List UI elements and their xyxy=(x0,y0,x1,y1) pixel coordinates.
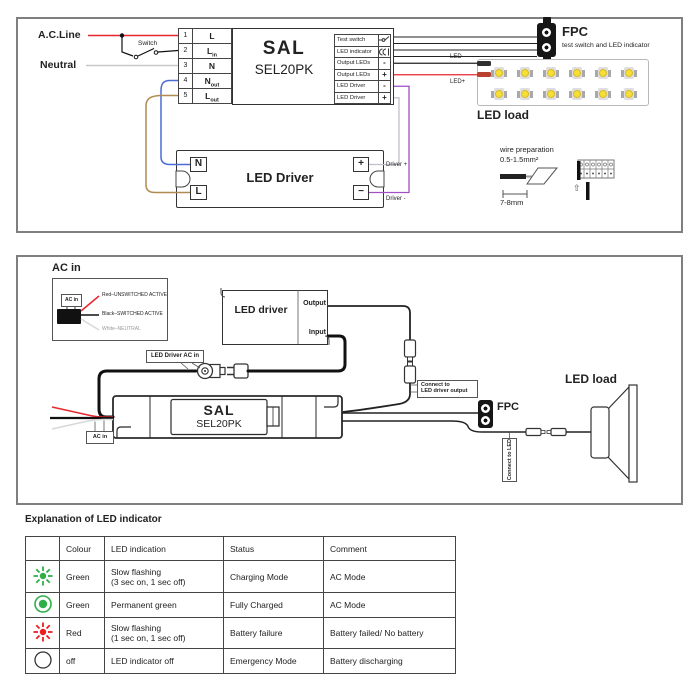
connect-led-label: Connect to LED xyxy=(502,438,517,482)
terminal-number: 3 xyxy=(179,59,193,73)
table-row: Green Permanent green Fully Charged AC M… xyxy=(26,593,456,618)
header-comment: Comment xyxy=(324,537,456,561)
cell-comment: AC Mode xyxy=(324,593,456,618)
fpc-hole-icon xyxy=(481,404,490,413)
driver-plus-terminal: + xyxy=(353,157,369,172)
led-chip-icon xyxy=(569,88,585,100)
table-row: Green Slow flashing (3 sec on, 1 sec off… xyxy=(26,561,456,593)
lead-black-label: Black–SWITCHED ACTIVE xyxy=(102,312,163,318)
table-row: Red Slow flashing (1 sec on, 1 sec off) … xyxy=(26,618,456,649)
terminal-row: 5Lout xyxy=(179,89,231,104)
fpc-subtitle: test switch and LED indicator xyxy=(562,42,650,50)
instruction-sheet: 1L 2Lin 3N 4Nout 5Lout SAL SEL20PK Test … xyxy=(0,0,700,700)
cell-indication: Slow flashing (3 sec on, 1 sec off) xyxy=(105,561,224,593)
cell-status: Battery failure xyxy=(224,618,324,649)
header-led-indication: LED indication xyxy=(105,537,224,561)
wire-prep-line2: 0.5-1.5mm² xyxy=(500,156,538,165)
cell-comment: Battery discharging xyxy=(324,649,456,674)
fpc-label-2: FPC xyxy=(497,401,519,414)
led-off-icon xyxy=(26,649,60,674)
driver-l-terminal: L xyxy=(190,185,207,200)
led-driver-title: LED Driver xyxy=(230,171,330,186)
connect-driver-label: Connect to LED driver output xyxy=(417,380,478,398)
led-chip-icon xyxy=(517,67,533,79)
cell-status: Fully Charged xyxy=(224,593,324,618)
led-load-label: LED load xyxy=(477,109,529,123)
cell-indication: LED indicator off xyxy=(105,649,224,674)
fpc-connector-icon xyxy=(537,23,556,57)
ac-line-label: A.C.Line xyxy=(38,29,81,41)
terminal-number: 4 xyxy=(179,74,193,88)
terminal-label-sub: out xyxy=(211,83,220,89)
led-chip-icon xyxy=(543,88,559,100)
table-header-row: Colour LED indication Status Comment xyxy=(26,537,456,561)
cell-colour: Green xyxy=(60,593,105,618)
led-chip-icon xyxy=(621,88,637,100)
driver-output-label: Output xyxy=(296,300,326,308)
terminal-row: 4Nout xyxy=(179,74,231,89)
terminal-label: L xyxy=(209,31,214,41)
lead-white-label: White–NEUTRAL xyxy=(102,327,141,333)
led-strip-board xyxy=(477,59,649,106)
led-chip-icon xyxy=(621,67,637,79)
cell-colour: Green xyxy=(60,561,105,593)
fpc-hole-icon xyxy=(481,416,490,425)
model-number: SEL20PK xyxy=(238,62,330,78)
driver-pos-label: Driver + xyxy=(386,162,407,169)
brand-logo: SAL xyxy=(238,38,330,60)
connect-driver-line2: LED driver output xyxy=(421,388,477,394)
led-chip-icon xyxy=(517,88,533,100)
header-status: Status xyxy=(224,537,324,561)
cell-status: Charging Mode xyxy=(224,561,324,593)
insert-arrow-icon: ⇧ xyxy=(573,183,581,193)
port-row-driver-plus: LED Driver + xyxy=(334,92,391,105)
wire-prep-line1: wire preparation xyxy=(500,146,554,155)
header-colour: Colour xyxy=(60,537,105,561)
driver-n-terminal: N xyxy=(190,157,207,172)
unit-brand: SAL xyxy=(171,402,267,418)
green-solid-led-icon xyxy=(26,593,60,618)
strip-length-label: 7-8mm xyxy=(500,199,523,208)
terminal-row: 2Lin xyxy=(179,44,231,59)
port-label: LED Driver xyxy=(334,92,379,105)
cell-comment: AC Mode xyxy=(324,561,456,593)
port-stack: Test switch LED indicator Output LEDs - … xyxy=(334,34,391,104)
unit-ac-in-label: AC in xyxy=(86,431,114,444)
led-indicator-table: Colour LED indication Status Comment Gre… xyxy=(25,536,456,674)
led-neg-label: LED- xyxy=(450,54,464,61)
terminal-number: 2 xyxy=(179,44,193,58)
terminal-row: 3N xyxy=(179,59,231,74)
terminal-row: 1L xyxy=(179,29,231,44)
driver-minus-terminal: − xyxy=(353,185,369,200)
fpc-title: FPC xyxy=(562,25,588,40)
table-row: off LED indicator off Emergency Mode Bat… xyxy=(26,649,456,674)
cell-indication: Permanent green xyxy=(105,593,224,618)
red-flashing-led-icon xyxy=(26,618,60,649)
led-chip-icon xyxy=(595,88,611,100)
header-icon-col xyxy=(26,537,60,561)
led-pos-label: LED+ xyxy=(450,79,465,86)
led-chip-icon xyxy=(595,67,611,79)
neutral-label: Neutral xyxy=(40,59,76,71)
fpc-connector-icon xyxy=(478,400,493,428)
fpc-hole-icon xyxy=(542,28,551,37)
switch-label: Switch xyxy=(138,40,157,47)
cell-colour: Red xyxy=(60,618,105,649)
terminal-number: 5 xyxy=(179,89,193,104)
cell-status: Emergency Mode xyxy=(224,649,324,674)
terminal-label-sub: out xyxy=(210,98,219,104)
ac-in-connector-body-icon xyxy=(57,309,81,324)
led-chip-icon xyxy=(491,88,507,100)
led-chip-icon xyxy=(569,67,585,79)
cell-indication: Slow flashing (1 sec on, 1 sec off) xyxy=(105,618,224,649)
table-title: Explanation of LED indicator xyxy=(25,514,162,526)
led-chip-icon xyxy=(543,67,559,79)
terminal-label: N xyxy=(209,61,215,71)
led-driver-title-2: LED driver xyxy=(224,304,298,316)
led-pos-pad-icon xyxy=(477,72,491,77)
led-load-label-2: LED load xyxy=(565,373,617,387)
driver-input-label: Input xyxy=(298,329,326,337)
terminal-label-sub: in xyxy=(212,53,217,59)
driver-ac-in-label: LED Driver AC in xyxy=(146,350,204,363)
green-flashing-led-icon xyxy=(26,561,60,593)
cell-comment: Battery failed/ No battery xyxy=(324,618,456,649)
driver-neg-label: Driver - xyxy=(386,196,406,203)
led-neg-pad-icon xyxy=(477,61,491,66)
port-pin-plus: + xyxy=(378,92,391,105)
led-chip-icon xyxy=(491,67,507,79)
unit-model: SEL20PK xyxy=(171,418,267,430)
ac-in-title: AC in xyxy=(52,262,81,275)
input-terminal-block: 1L 2Lin 3N 4Nout 5Lout xyxy=(178,28,232,104)
ac-in-plug-icon: AC in xyxy=(61,294,82,307)
lead-red-label: Red–UNSWITCHED ACTIVE xyxy=(102,293,167,299)
fpc-hole-icon xyxy=(542,43,551,52)
terminal-number: 1 xyxy=(179,29,193,43)
cell-colour: off xyxy=(60,649,105,674)
